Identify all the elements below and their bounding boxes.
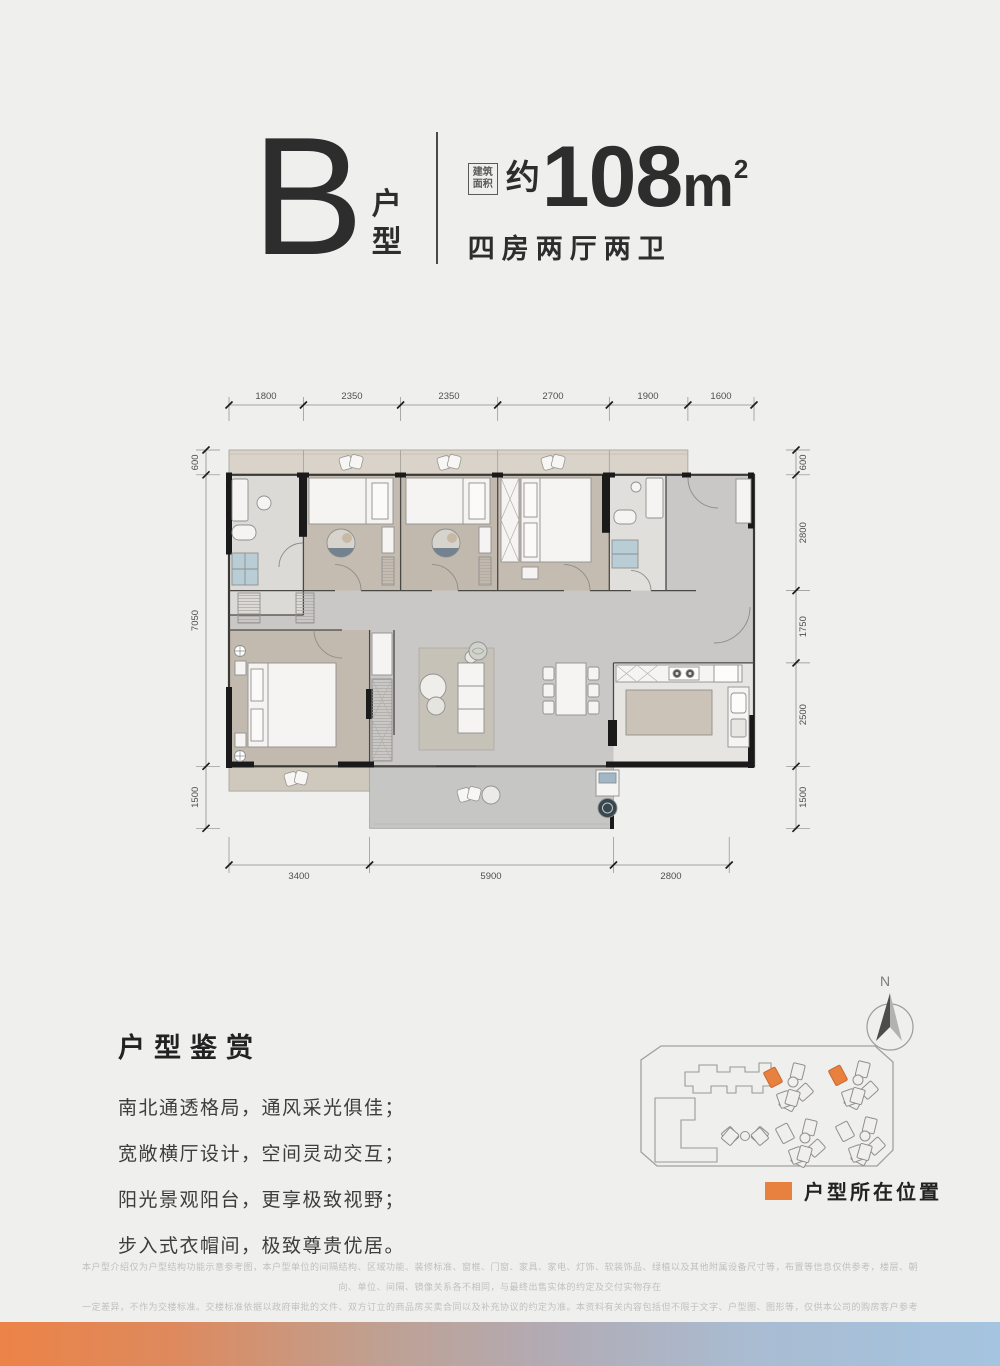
approx-label: 约 [506, 150, 540, 199]
area-box-label: 建筑 面积 [468, 163, 498, 195]
room-config-subtitle: 四房两厅两卫 [468, 227, 749, 266]
dimension-lines-left: 600 7050 1500 [190, 447, 220, 832]
wardrobe [501, 478, 519, 562]
kitchen-sink [731, 693, 746, 713]
site-building [655, 1098, 717, 1162]
dim-label: 2800 [660, 871, 681, 882]
dim-label: 5900 [480, 871, 501, 882]
bath1-cabinet [232, 479, 248, 521]
dim-label: 1750 [798, 616, 809, 637]
unit-type-char-1: 户 [372, 186, 402, 224]
washing-machine [598, 799, 617, 818]
area-row: 建筑 面积 约 108 m2 [468, 144, 749, 211]
unit-letter: B [252, 128, 362, 266]
dim-label: 1800 [255, 391, 276, 402]
dimension-lines-bottom: 3400 5900 2800 [226, 837, 733, 882]
dining-table [556, 663, 586, 715]
balcony-table [482, 786, 500, 804]
kitchen-island [626, 690, 712, 735]
dim-label: 1500 [798, 787, 809, 808]
dim-label: 600 [798, 454, 809, 470]
appreciation-line: 阳光景观阳台，更享极致视野； [118, 1185, 405, 1212]
shoe-cabinet [736, 479, 751, 523]
appreciation-line: 南北通透格局，通风采光俱佳； [118, 1093, 405, 1120]
area-box-line2: 面积 [473, 179, 493, 191]
brochure-page: B 户 型 建筑 面积 约 108 m2 四房两厅两卫 [0, 0, 1000, 1366]
dim-label: 1600 [710, 391, 731, 402]
wic-cabinet [372, 633, 392, 675]
area-unit: m2 [682, 159, 748, 210]
disclaimer-line: 本户型介绍仅为户型结构功能示意参考图，本户型单位的间隔结构、区域功能、装修标准、… [80, 1257, 920, 1297]
appreciation-title: 户型鉴赏 [118, 1026, 405, 1065]
header-right: 建筑 面积 约 108 m2 四房两厅两卫 [468, 128, 749, 266]
dim-label: 1500 [190, 787, 201, 808]
dim-label: 7050 [190, 610, 201, 631]
unit-type-label: 户 型 [372, 128, 402, 266]
legend-swatch [765, 1182, 792, 1200]
floorplan: 1800 2350 2350 2700 1900 1600 600 7050 1… [136, 375, 856, 915]
header-divider [436, 132, 438, 264]
dim-label: 2700 [542, 391, 563, 402]
floorplan-rooms [229, 450, 754, 828]
dim-label: 2500 [798, 704, 809, 725]
appreciation-line: 宽敞横厅设计，空间灵动交互； [118, 1139, 405, 1166]
wic-wardrobe [372, 679, 392, 761]
site-building [685, 1063, 771, 1093]
site-cluster [835, 1117, 885, 1166]
gradient-footer-bar [0, 1322, 1000, 1366]
area-box-line1: 建筑 [473, 167, 493, 179]
sofa [458, 663, 484, 733]
site-cluster [721, 1126, 769, 1146]
appreciation-section: 户型鉴赏 南北通透格局，通风采光俱佳； 宽敞横厅设计，空间灵动交互； 阳光景观阳… [118, 1026, 405, 1277]
appreciation-lines: 南北通透格局，通风采光俱佳； 宽敞横厅设计，空间灵动交互； 阳光景观阳台，更享极… [118, 1093, 405, 1258]
dim-label: 2800 [798, 522, 809, 543]
siteplan [633, 1040, 901, 1174]
dim-label: 2350 [341, 391, 362, 402]
dim-label: 2350 [438, 391, 459, 402]
area-value: 108 [542, 144, 683, 211]
coffee-table [420, 674, 446, 700]
unit-type-char-2: 型 [372, 224, 402, 262]
dim-label: 3400 [288, 871, 309, 882]
header: B 户 型 建筑 面积 约 108 m2 四房两厅两卫 [0, 128, 1000, 266]
dimension-lines-right: 600 2800 1750 2500 1500 [786, 447, 810, 832]
dim-label: 1900 [637, 391, 658, 402]
dim-label: 600 [190, 454, 201, 470]
location-legend: 户型所在位置 [765, 1176, 942, 1205]
appreciation-line: 步入式衣帽间，极致尊贵优居。 [118, 1231, 405, 1258]
site-cluster [763, 1063, 813, 1112]
floorplan-svg: 1800 2350 2350 2700 1900 1600 600 7050 1… [136, 375, 856, 915]
highlighted-unit [763, 1067, 782, 1088]
dimension-lines-top: 1800 2350 2350 2700 1900 1600 [226, 391, 758, 421]
legend-label: 户型所在位置 [804, 1176, 942, 1205]
bath1-basin [257, 496, 271, 510]
bath1-toilet [232, 525, 256, 540]
site-cluster [828, 1061, 878, 1110]
compass-n-label: N [880, 973, 890, 989]
area-superscript: 2 [734, 154, 748, 184]
highlighted-unit [828, 1065, 847, 1086]
site-cluster [775, 1119, 825, 1168]
